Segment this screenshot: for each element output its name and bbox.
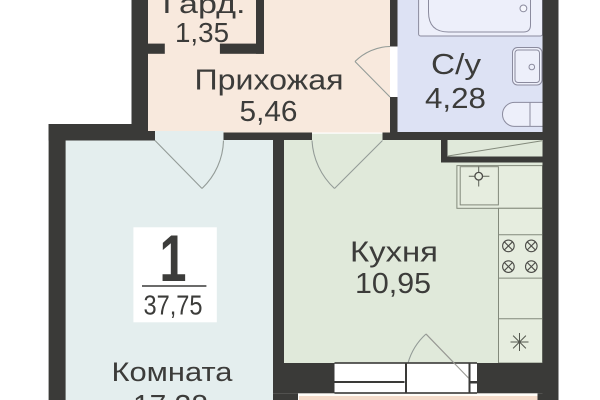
- svg-text:Прихожая: Прихожая: [195, 65, 344, 97]
- svg-text:Комната: Комната: [112, 357, 234, 387]
- svg-text:10,95: 10,95: [355, 268, 431, 300]
- svg-text:1: 1: [160, 221, 187, 295]
- svg-text:17,38: 17,38: [133, 390, 208, 400]
- svg-text:С/у: С/у: [431, 49, 482, 81]
- svg-text:4,28: 4,28: [425, 83, 486, 115]
- svg-text:Кухня: Кухня: [350, 237, 438, 269]
- svg-text:5,46: 5,46: [240, 96, 298, 128]
- svg-text:37,75: 37,75: [144, 290, 203, 321]
- svg-text:1,35: 1,35: [175, 17, 229, 48]
